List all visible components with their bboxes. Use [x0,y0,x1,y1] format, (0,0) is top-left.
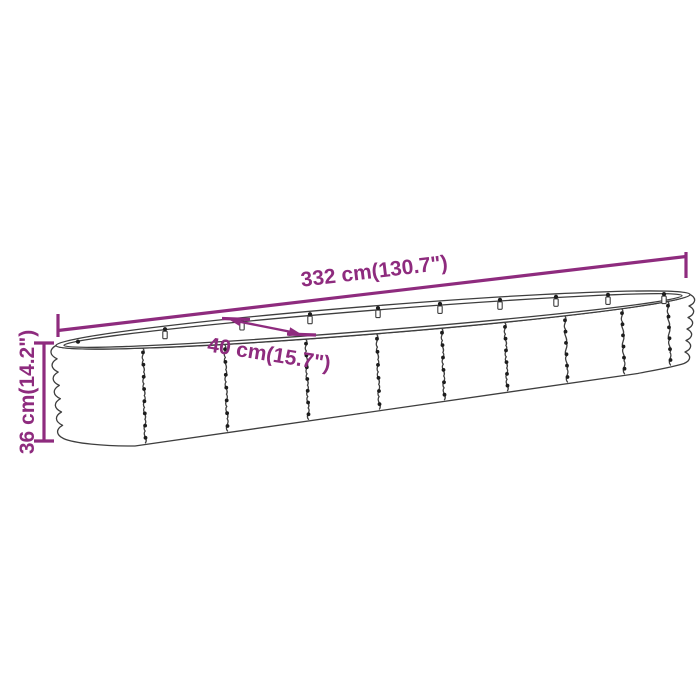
seam-rivet-dot [378,402,382,406]
rim-bracket [606,297,610,305]
seam-rivet-dot [143,399,147,403]
seam-rivet-dot [666,304,670,308]
seam-rivet-dot [143,412,147,416]
seam-rivet-dot [667,326,671,330]
rim-bracket [554,299,558,307]
rim-fastener-dot [376,306,380,310]
rim-bracket [662,296,666,304]
rim-fastener-dot [498,298,502,302]
rim-bracket [498,302,502,310]
rim-fastener-dot [438,302,442,306]
seam-rivet-dot [504,349,508,353]
seam-rivet-dot [621,334,625,338]
seam-rivet-dot [143,424,147,428]
seam-rivet-dot [564,330,568,334]
seam-rivet-dot [304,342,308,346]
planter-diagram-canvas: 332 cm(130.7") 36 cm(14.2") 40 cm(15.7") [0,0,700,700]
seam-rivet-dot [306,389,310,393]
rim-fastener-dot [308,312,312,316]
seam-rivet-dot [225,399,229,403]
seam-rivet-dot [376,350,380,354]
seam-rivet-dot [668,336,672,340]
rim-bracket [308,316,312,324]
planter-drawing [51,281,695,446]
seam-rivet-dot [504,337,508,341]
seam-rivet-dot [442,380,446,384]
seam-rivet-dot [506,384,510,388]
rim-fastener-dot [163,327,167,331]
seam-rivet-dot [375,337,379,341]
width-tail-right [287,334,316,335]
seam-rivet-dot [224,386,228,390]
seam-rivet-dot [377,389,381,393]
rim-fastener-dot [606,293,610,297]
seam-rivet-dot [566,375,570,379]
seam-rivet-dot [440,331,444,335]
rim-bracket [438,306,442,314]
seam-rivet-dot [376,363,380,367]
seam-rivet-dot [141,351,145,355]
seam-rivet-dot [622,345,626,349]
seam-rivet-dot [565,364,569,368]
seam-rivet-dot [441,356,445,360]
seam-rivet-dot [307,412,311,416]
seam-rivet-dot [669,358,673,362]
seam-rivet-dot [565,352,569,356]
rim-fastener-dot [662,292,666,296]
seam-rivet-dot [142,387,146,391]
product-dimension-diagram: 332 cm(130.7") 36 cm(14.2") 40 cm(15.7") [0,0,700,700]
rim-fastener-dot [76,340,80,344]
height-label: 36 cm(14.2") [16,330,39,454]
seam-rivet-dot [564,341,568,345]
seam-rivet-dot [668,347,672,351]
seam-rivet-dot [441,343,445,347]
dimension-height: 36 cm(14.2") [16,330,54,454]
rim-bracket [163,331,167,339]
seam-rivet-dot [563,318,567,322]
rim-bracket [376,310,380,318]
seam-rivet-dot [377,376,381,380]
seam-rivet-dot [623,367,627,371]
seam-rivet-dot [622,356,626,360]
seam-rivet-dot [144,436,148,440]
seam-rivet-dot [443,393,447,397]
seam-rivet-dot [142,375,146,379]
seam-rivet-dot [620,311,624,315]
seam-rivet-dot [505,360,509,364]
seam-rivet-dot [621,322,625,326]
seam-rivet-dot [306,401,310,405]
seam-rivet-dot [305,377,309,381]
seam-rivet-dot [226,424,230,428]
seam-rivet-dot [142,363,146,367]
seam-rivet-dot [225,411,229,415]
seam-rivet-dot [503,325,507,329]
seam-rivet-dot [224,373,228,377]
seam-rivet-dot [442,368,446,372]
rim-fastener-dot [554,295,558,299]
seam-rivet-dot [224,360,228,364]
seam-rivet-dot [505,372,509,376]
seam-rivet-dot [667,315,671,319]
